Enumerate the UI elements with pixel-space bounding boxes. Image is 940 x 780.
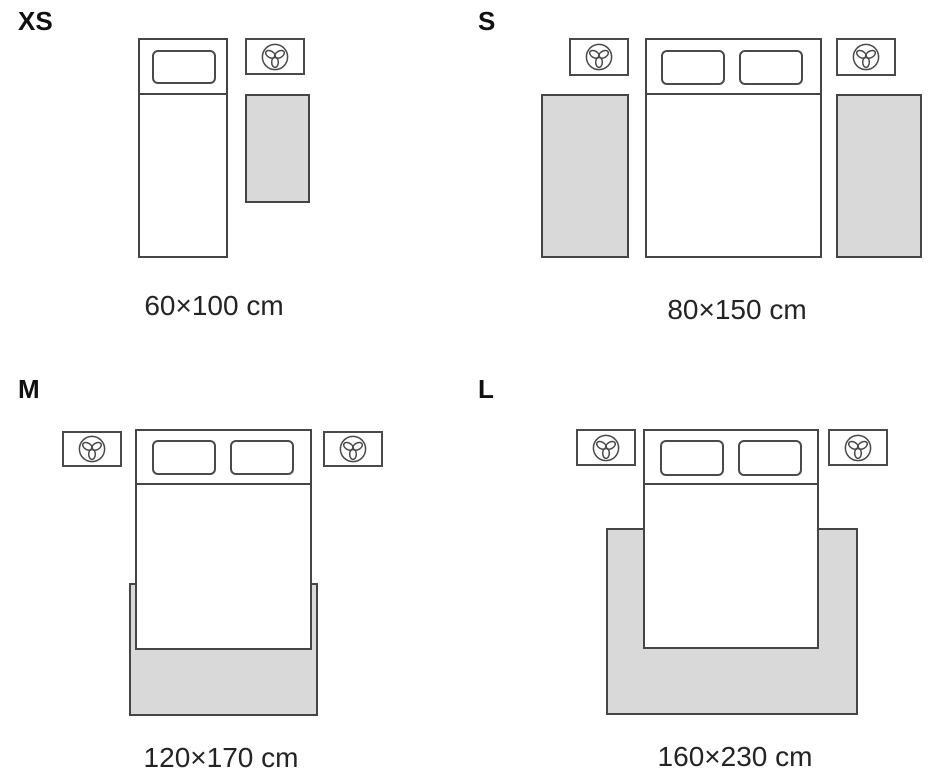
nightstand-right [828,429,888,466]
plant-icon [843,433,873,463]
pillow-right [738,440,802,476]
pillow-left [660,440,724,476]
double-bed [643,429,819,649]
panel-l: L 160×230 cm [0,0,940,780]
nightstand-left [576,429,636,466]
headboard-divider [645,483,817,485]
plant-icon [591,433,621,463]
panel-label-l: L [478,376,494,402]
rug-size-guide-diagram: XS 60×100 cm S [0,0,940,780]
size-caption-l: 160×230 cm [635,743,835,771]
